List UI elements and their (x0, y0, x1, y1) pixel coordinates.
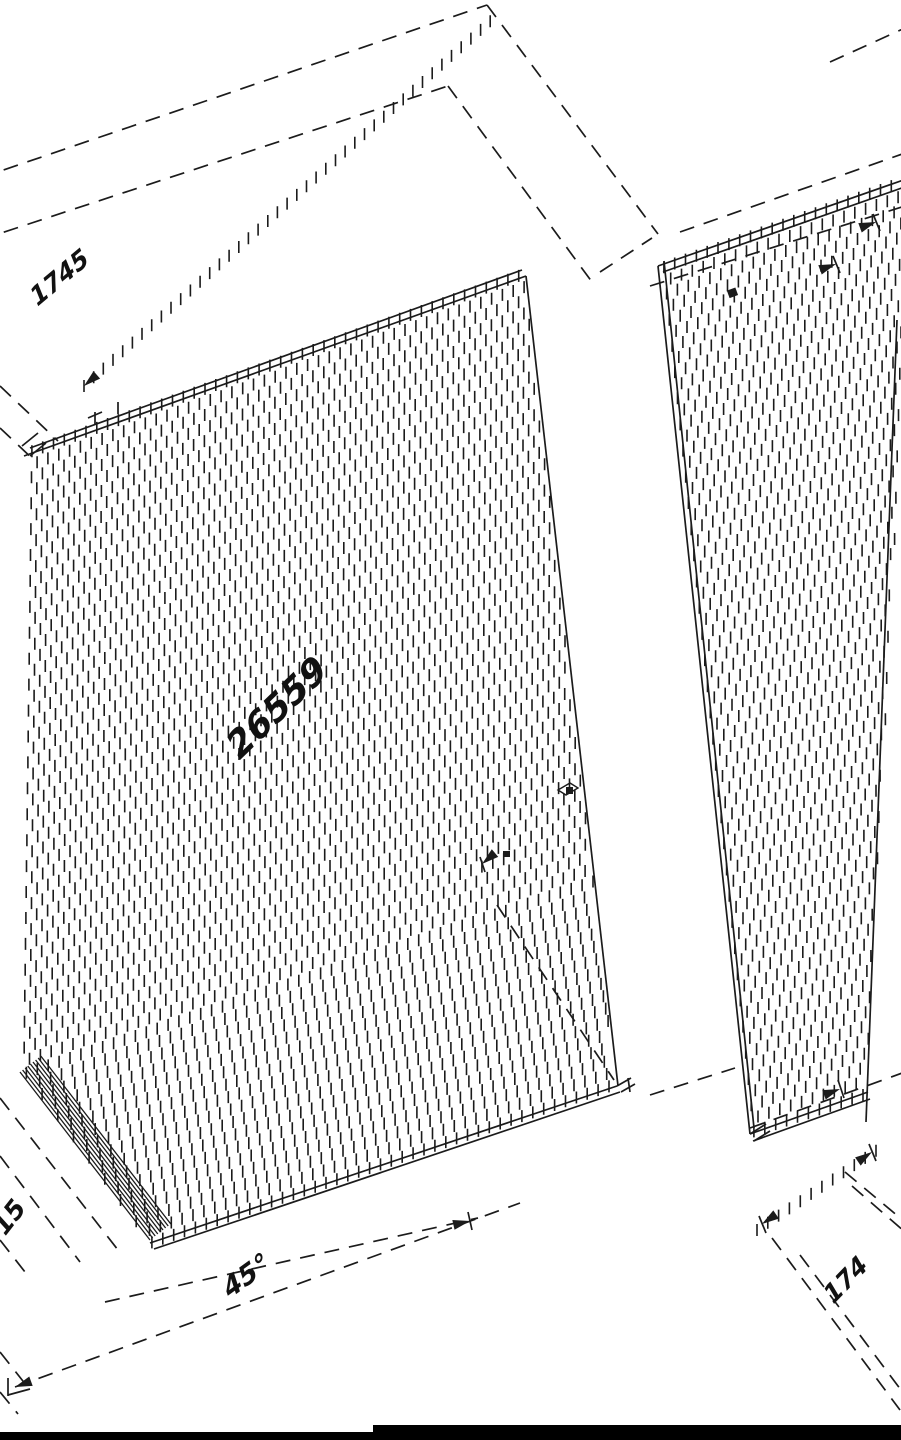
edge-line (753, 1099, 870, 1141)
dashed-line (845, 1172, 901, 1222)
dashed-line (0, 86, 448, 240)
dashed-line (852, 1186, 901, 1232)
dashed-line (600, 238, 652, 272)
arrowhead-icon (822, 1084, 841, 1099)
dashed-line (0, 1240, 25, 1272)
dashed-line (487, 5, 658, 234)
edge-line (628, 1078, 630, 1092)
edge-line (8, 1389, 30, 1395)
dashed-line (650, 1068, 735, 1095)
edge-line (838, 1080, 844, 1098)
dashed-line (0, 5, 487, 178)
fastener-mark (503, 851, 510, 857)
arrowhead-icon (452, 1216, 471, 1230)
hidden-and-dimension-lines (0, 5, 901, 1414)
dim-bottom-right: 174 (819, 1248, 871, 1312)
main-panel-hatch (24, 270, 609, 1249)
edge-line (658, 266, 750, 1134)
isometric-technical-drawing: 17452655945°15174 (0, 0, 901, 1440)
dashed-line (830, 28, 901, 62)
dim-top-left: 1745 (27, 241, 92, 314)
dim-bottom-center: 45° (220, 1245, 272, 1307)
edge-line (154, 1092, 620, 1249)
edge-line (664, 261, 754, 1128)
tick-row (84, 15, 490, 392)
dashed-line (0, 428, 36, 462)
lamination-lines (20, 1056, 171, 1240)
edge-line (22, 433, 38, 446)
drawing-svg: 17452655945°15174 (0, 0, 901, 1440)
dashed-line (0, 386, 58, 441)
fastener-mark (727, 288, 738, 299)
connector-block (566, 787, 573, 794)
dim-bottom-left: 15 (0, 1192, 31, 1243)
edge-line (621, 1084, 635, 1092)
dashed-line (650, 206, 901, 286)
panel-hatching (24, 176, 901, 1248)
laminated-edge-lines (20, 1056, 171, 1240)
dashed-line (772, 1238, 900, 1410)
edge-line (866, 320, 897, 1122)
edge-line (750, 1092, 868, 1134)
bottom-edge-bar (0, 1425, 901, 1440)
edge-line (759, 1216, 766, 1233)
edge-line (869, 1144, 876, 1161)
bottom-bar-thick (373, 1425, 901, 1440)
dashed-line (15, 1203, 520, 1387)
